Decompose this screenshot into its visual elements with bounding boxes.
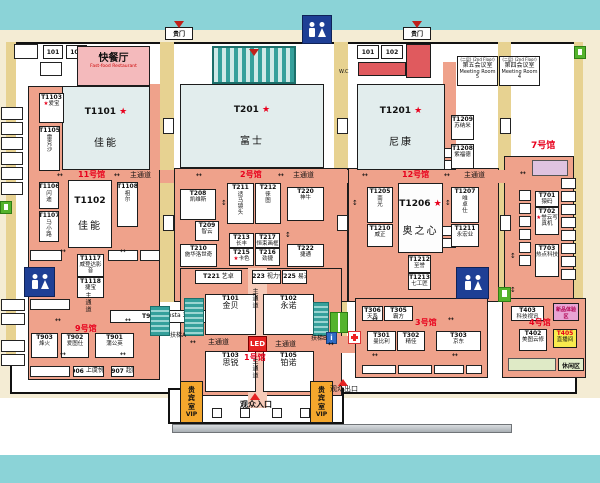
- woman-icon: [319, 22, 326, 38]
- booth-T1102: T1102佳能: [68, 180, 112, 248]
- booth-T1205: T1205南光: [367, 187, 393, 223]
- booth-T1206: T1206 ★奥之心: [398, 183, 443, 253]
- booth-T209: T209智云: [195, 221, 219, 241]
- booth-T201: T201 ★富士: [180, 84, 324, 168]
- small-booth-46: [240, 408, 250, 418]
- small-booth-40: [30, 366, 70, 377]
- booth-T405: T405直播间: [553, 329, 577, 348]
- vip-label: 贵宾室: [318, 386, 326, 411]
- meeting-room-text: Meeting Room 5: [459, 70, 496, 81]
- label-3号馆: 3号馆: [415, 319, 437, 327]
- label-12号馆: 12号馆: [402, 171, 429, 179]
- booth-code: T906: [73, 368, 84, 375]
- fast-food-restaurant-label: 快餐厅: [78, 49, 149, 64]
- aisle-arrow-2: ↔: [196, 172, 202, 179]
- rest-area-label: 休闲区: [559, 361, 583, 370]
- vip-room-left: 贵宾室VIP: [180, 381, 203, 423]
- salmon-strip-topleft: [150, 84, 160, 170]
- booth-name: 苏纳米: [454, 123, 471, 129]
- booth-name: 直播间: [557, 337, 574, 343]
- small-booth-17: [500, 215, 511, 231]
- woman-icon: [41, 274, 48, 290]
- small-booth-29: [561, 243, 576, 254]
- booth-name: ★誉云写真机: [536, 215, 558, 227]
- booth-T1107: T1107马小路: [39, 211, 59, 242]
- booth-code: T907: [111, 368, 124, 375]
- booth-T101: T101金贝: [205, 294, 256, 335]
- small-booth-25: [561, 191, 576, 202]
- booth-T1213: T1213七工匠: [408, 273, 431, 290]
- label-主通道: 主通道: [208, 339, 229, 346]
- label-4号馆: 4号馆: [529, 319, 551, 327]
- aisle-arrow-14: ↔: [372, 316, 378, 323]
- entrance-steps: [172, 424, 512, 433]
- booth-T220: T220神牛: [287, 187, 324, 221]
- booth-name: 神牛: [300, 195, 311, 201]
- small-booth-5: [1, 182, 23, 195]
- label-扶梯B: 扶梯B: [311, 336, 327, 342]
- aisle-arrow-11: ↔: [120, 351, 126, 358]
- booth-T305: T305霸方: [384, 306, 413, 321]
- exit-topright: [574, 46, 586, 59]
- booth-name: 爱图仕: [67, 341, 84, 347]
- aisle-arrow-18: ↔: [120, 248, 126, 255]
- led-screen: LED: [248, 336, 267, 352]
- booth-name: 永宏业: [457, 232, 474, 238]
- small-booth-45: [212, 408, 222, 418]
- restroom-top: [302, 15, 332, 44]
- booth-code: T225: [282, 273, 296, 280]
- booth-name: 雷克沙: [46, 135, 54, 153]
- aisle-patch-3: [498, 170, 511, 183]
- booth-T1105: T1105雷克沙: [39, 126, 60, 171]
- small-booth-16: [500, 118, 511, 134]
- booth-name: 劲捷: [262, 256, 273, 262]
- booth-name: 艺卓: [222, 274, 234, 281]
- small-booth-28: [561, 230, 576, 241]
- booth-name: 铂诺: [281, 359, 297, 368]
- red-room-block-1: [358, 62, 406, 76]
- small-booth-10: [14, 44, 38, 59]
- aisle-patch-1: [160, 170, 174, 183]
- man-icon: [309, 22, 316, 38]
- booth-name: 唯卓仕: [461, 196, 469, 214]
- fast-food-restaurant-sublabel: Fast-food Restaurant: [78, 64, 149, 69]
- label-主通道: 主通道: [251, 358, 257, 379]
- small-booth-13: [163, 215, 174, 231]
- booth-T210: T210施华洛世奇: [180, 244, 217, 267]
- booth-T213: T213长丰: [229, 233, 254, 248]
- label-主通道: 主通道: [130, 172, 151, 179]
- aisle-arrow-19: ↕: [221, 200, 227, 207]
- small-booth-24: [561, 178, 576, 189]
- top-band: [0, 0, 600, 30]
- aisle-arrow-4: ↔: [362, 172, 368, 179]
- booth-name: 威正: [374, 232, 385, 238]
- booth-name: 美图云修: [522, 337, 544, 343]
- booth-name: 猿码: [541, 199, 552, 205]
- aisle-arrow-20: ↕: [285, 232, 291, 239]
- booth-T1108: T1108祖尔: [117, 182, 138, 227]
- booth-name: 凯维斯: [190, 197, 207, 203]
- gate-marker-right: [412, 21, 422, 28]
- booth-T1207: T1207唯卓仕: [451, 187, 479, 223]
- escalator-b: [313, 302, 329, 336]
- aisle-arrow-23: ↕: [510, 253, 516, 260]
- small-booth-15: [337, 215, 348, 231]
- booth-name: 奥之心: [403, 226, 439, 237]
- label-观众出口: 观众出口: [330, 386, 358, 393]
- aisle-arrow-15: ↔: [448, 316, 454, 323]
- small-booth-44: [466, 365, 482, 374]
- booth-T223: T223视力保: [252, 270, 281, 284]
- small-booth-31: [561, 269, 576, 280]
- booth-code: T1105: [39, 127, 60, 134]
- small-booth-11: [40, 62, 62, 76]
- small-booth-27: [561, 217, 576, 228]
- aisle-arrow-21: ↕: [352, 200, 358, 207]
- booth-T901: T901蒲公英: [95, 333, 134, 358]
- label-主通道: 主通道: [293, 172, 314, 179]
- exit-left: [0, 201, 12, 214]
- small-booth-30: [561, 256, 576, 267]
- booth-T1117: T1117威登达影音: [77, 254, 104, 277]
- label-W.C: W.C: [339, 70, 348, 75]
- booth-code: T1201 ★: [380, 106, 422, 117]
- booth-T208: T208凯维斯: [180, 189, 216, 220]
- small-booth-39: [30, 299, 70, 310]
- booth-code: T1106: [39, 183, 59, 190]
- aisle-arrow-3: ↔: [278, 172, 284, 179]
- star-icon: ★: [431, 199, 442, 209]
- stairs-marker: [249, 49, 259, 56]
- small-booth-20: [519, 216, 531, 227]
- man-icon: [31, 274, 38, 290]
- booth-code: T1207: [455, 188, 476, 195]
- booth-code: T223: [252, 273, 265, 280]
- star-icon: ★: [411, 106, 422, 116]
- small-booth-48: [300, 408, 310, 418]
- star-icon: ★: [234, 256, 239, 262]
- vip-label-en: VIP: [316, 411, 327, 418]
- vip-label: 贵宾室: [188, 386, 196, 411]
- small-booth-2: [1, 137, 23, 150]
- gate-0: 贵门: [165, 27, 193, 40]
- small-booth-3: [1, 152, 23, 165]
- label-主通道: 主通道: [251, 288, 257, 309]
- room-101-3: 101: [357, 45, 379, 59]
- booth-name: 京东: [453, 339, 464, 345]
- fast-food-restaurant: 快餐厅Fast-food Restaurant: [77, 46, 150, 86]
- small-booth-41: [362, 365, 396, 374]
- booth-code: T1108: [117, 183, 138, 190]
- aisle-arrow-5: ↔: [444, 172, 450, 179]
- woman-icon: [474, 275, 481, 291]
- booth-T1101: T1101 ★佳能: [62, 86, 150, 170]
- small-booth-14: [337, 118, 348, 134]
- booth-code: T1101 ★: [85, 107, 127, 118]
- booth-T1208: T1208紫福德: [451, 144, 474, 169]
- booth-name: 热点科技: [536, 252, 558, 258]
- booth-T216: T216劲捷: [255, 248, 280, 266]
- booth-name: 马小路: [45, 220, 53, 238]
- booth-T221: T221艺卓: [195, 270, 242, 284]
- label-7号馆: 7号馆: [531, 142, 555, 151]
- booth-name: ★爱宝: [44, 101, 60, 107]
- booth-name: 永诺: [281, 302, 297, 311]
- small-booth-22: [519, 242, 531, 253]
- booth-T215: T215★卡色: [229, 248, 254, 266]
- booth-T1209: T1209苏纳米: [451, 115, 474, 140]
- small-booth-23: [519, 255, 531, 266]
- red-room-block-2: [406, 44, 431, 78]
- aisle-arrow-9: ↔: [125, 317, 131, 324]
- booth-name: 捷宝: [85, 285, 96, 291]
- booth-code: T221: [203, 273, 220, 280]
- booth-T301: T301曼比利: [367, 331, 396, 351]
- vip-label-en: VIP: [186, 411, 197, 418]
- small-booth-47: [272, 408, 282, 418]
- small-booth-1: [1, 122, 23, 135]
- small-booth-0: [1, 107, 23, 120]
- meeting-room-4: (二层) (2nd Floor)第四会议室Meeting Room 4: [499, 56, 540, 86]
- booth-name: 恒束画框: [256, 241, 278, 247]
- booth-name: 思锐: [223, 359, 239, 368]
- stage-lavender: [532, 160, 568, 176]
- booth-T702: T702★誉云写真机: [535, 207, 559, 235]
- booth-T105: T105铂诺: [263, 351, 314, 392]
- booth-code: T1107: [39, 212, 59, 219]
- aisle-arrow-24: ↕: [510, 287, 516, 294]
- booth-T906: T906上虞悦丰: [73, 366, 104, 377]
- restroom-hall12: [456, 267, 489, 299]
- booth-T225: T225易通: [282, 270, 307, 284]
- small-booth-42: [398, 365, 432, 374]
- booth-name: 精佳: [405, 339, 416, 345]
- booth-name: 金贝: [223, 302, 239, 311]
- booth-name: 易通: [298, 274, 307, 281]
- booth-name: 闪迪: [45, 191, 53, 203]
- meeting-room-5: (二层) (2nd Floor)第五会议室Meeting Room 5: [457, 56, 498, 86]
- booth-T402: T402美图云修: [519, 329, 547, 351]
- small-booth-6: [1, 299, 25, 311]
- booth-T217: T217恒束画框: [255, 233, 280, 248]
- label-扶梯A: 扶梯A: [170, 333, 186, 339]
- doors-hall1-right: [330, 312, 348, 333]
- booth-T701: T701猿码: [535, 191, 559, 207]
- label-9号馆: 9号馆: [75, 325, 97, 333]
- booth-T1211: T1211永宏业: [451, 224, 479, 247]
- booth-name: 烽火: [39, 341, 50, 347]
- man-icon: [464, 275, 471, 291]
- gate-1: 贵门: [403, 27, 431, 40]
- booth-name: 视力保: [267, 274, 281, 281]
- gate-marker-left: [174, 21, 184, 28]
- booth-T303: T303京东: [436, 331, 481, 351]
- aisle-arrow-8: ↔: [55, 317, 61, 324]
- new-product-zone: 新品体验区: [553, 303, 579, 321]
- small-booth-36: [30, 250, 62, 261]
- floor-plan: ▼北京展览馆1、2、3、4、7、9、11、12号馆导览图 T1101 ★佳能T2…: [0, 0, 600, 483]
- booth-T1201: T1201 ★尼康: [357, 84, 445, 170]
- small-booth-8: [1, 340, 25, 352]
- booth-name: 上虞悦丰: [86, 368, 104, 375]
- small-booth-18: [519, 190, 531, 201]
- label-主通道: 主通道: [464, 172, 485, 179]
- aisle-arrow-7: ↔: [328, 341, 334, 348]
- booth-name: 富士: [240, 136, 264, 147]
- new-product-zone-label: 新品体验区: [554, 306, 578, 320]
- aisle-arrow-13: ↔: [452, 352, 458, 359]
- small-booth-12: [163, 118, 174, 134]
- booth-code: T1205: [370, 188, 391, 195]
- booth-T1212: T1212至誉: [408, 255, 431, 273]
- booth-name: 徕图: [264, 192, 272, 204]
- label-主通道: 主通道: [84, 292, 90, 313]
- small-booth-43: [434, 365, 464, 374]
- booth-T1103: T1103★爱宝: [39, 93, 64, 123]
- escalator-a1: [150, 306, 170, 336]
- label-11号馆: 11号馆: [78, 171, 105, 179]
- booth-T907: T907超同: [111, 366, 134, 377]
- first-aid: [348, 331, 361, 344]
- star-icon: ★: [259, 105, 270, 115]
- booth-name: 佳能: [94, 138, 118, 149]
- booth-T212: T212徕图: [255, 183, 281, 224]
- label-2号馆: 2号馆: [240, 171, 262, 179]
- small-booth-7: [1, 313, 25, 325]
- escalator-a2: [184, 298, 204, 336]
- small-booth-26: [561, 204, 576, 215]
- aisle-arrow-22: ↕: [445, 200, 451, 207]
- small-booth-9: [1, 354, 25, 366]
- booth-T222: T222捷通: [287, 244, 324, 267]
- booth-name: 智云: [201, 229, 212, 235]
- booth-name: 适马镜头: [237, 192, 245, 216]
- room-102-4: 102: [381, 45, 403, 59]
- aisle-arrow-17: ↔: [60, 248, 66, 255]
- booth-name: 捷通: [300, 252, 311, 258]
- booth-name: 至誉: [414, 263, 425, 269]
- booth-T703: T703热点科技: [535, 244, 559, 277]
- bottom-band: [0, 455, 600, 483]
- booth-name: 尼康: [389, 137, 413, 148]
- entrance-arrow: [250, 393, 260, 400]
- booth-name: 紫福德: [454, 152, 471, 158]
- booth-name: 施华洛世奇: [185, 252, 213, 258]
- booth-name: 蒲公英: [106, 341, 123, 347]
- booth-name: 佳能: [78, 221, 102, 232]
- small-booth-19: [519, 203, 531, 214]
- label-观众入口: 观众入口: [240, 401, 272, 409]
- booth-T903: T903烽火: [31, 333, 58, 358]
- booth-name: 七工匠: [411, 281, 428, 287]
- aisle-arrow-16: ↔: [520, 170, 526, 177]
- small-booth-21: [519, 229, 531, 240]
- restroom-left: [24, 267, 55, 297]
- label-主通道: 主通道: [275, 341, 296, 348]
- booth-code: T201 ★: [234, 105, 270, 116]
- booth-name: 威登达影音: [78, 262, 103, 274]
- small-booth-38: [140, 250, 160, 261]
- booth-T1106: T1106闪迪: [39, 182, 59, 209]
- star-icon: ★: [116, 107, 127, 117]
- aisle-arrow-0: ↔: [57, 172, 63, 179]
- booth-code: T1206 ★: [399, 199, 441, 210]
- booth-T1210: T1210威正: [367, 224, 393, 247]
- aisle-arrow-12: ↔: [372, 352, 378, 359]
- booth-code: T211: [232, 184, 249, 191]
- booth-name: 祖尔: [124, 191, 132, 203]
- aisle-arrow-1: ↔: [114, 172, 120, 179]
- room-101-0: 101: [43, 45, 63, 59]
- booth-name: ★卡色: [234, 256, 250, 262]
- meeting-room-text: Meeting Room 4: [501, 70, 538, 81]
- rest-area: 休闲区: [558, 358, 584, 371]
- star-icon: ★: [44, 101, 49, 107]
- booth-name: 曼比利: [373, 339, 390, 345]
- booth-name: 超同: [126, 368, 134, 375]
- aisle-arrow-10: ↔: [60, 351, 66, 358]
- booth-T211: T211适马镜头: [227, 183, 254, 224]
- booth-name: 南光: [376, 196, 384, 208]
- aisle-patch-2: [334, 170, 348, 183]
- booth-T102: T102永诺: [263, 294, 314, 335]
- booth-name: 长丰: [236, 241, 247, 247]
- booth-code: T1102: [74, 196, 105, 207]
- booth-code: T212: [260, 184, 277, 191]
- star-icon: ★: [536, 215, 541, 221]
- aisle-arrow-6: ↔: [190, 339, 196, 346]
- booth-name: 霸方: [393, 314, 404, 320]
- booth-T302: T302精佳: [397, 331, 425, 351]
- small-booth-4: [1, 167, 23, 180]
- rest-row-green: [508, 358, 556, 371]
